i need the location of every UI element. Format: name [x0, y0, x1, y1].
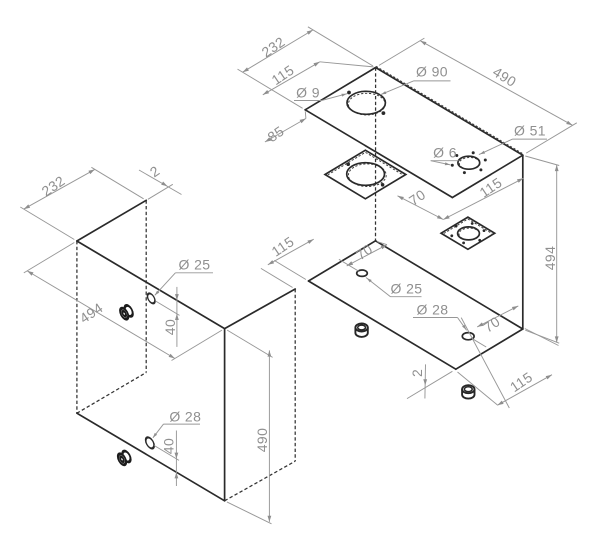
svg-text:Ø 90: Ø 90 — [416, 64, 448, 80]
svg-text:Ø 28: Ø 28 — [417, 302, 449, 318]
svg-text:Ø 25: Ø 25 — [391, 281, 423, 297]
svg-text:Ø 9: Ø 9 — [296, 85, 320, 101]
svg-text:Ø 6: Ø 6 — [433, 145, 457, 161]
svg-text:494: 494 — [542, 246, 558, 271]
svg-text:40: 40 — [162, 319, 178, 335]
svg-text:Ø 25: Ø 25 — [179, 257, 211, 273]
svg-text:40: 40 — [160, 438, 176, 454]
svg-text:2: 2 — [409, 369, 425, 377]
svg-text:Ø 51: Ø 51 — [514, 123, 546, 139]
svg-text:Ø 28: Ø 28 — [169, 409, 201, 425]
svg-text:490: 490 — [254, 428, 270, 453]
